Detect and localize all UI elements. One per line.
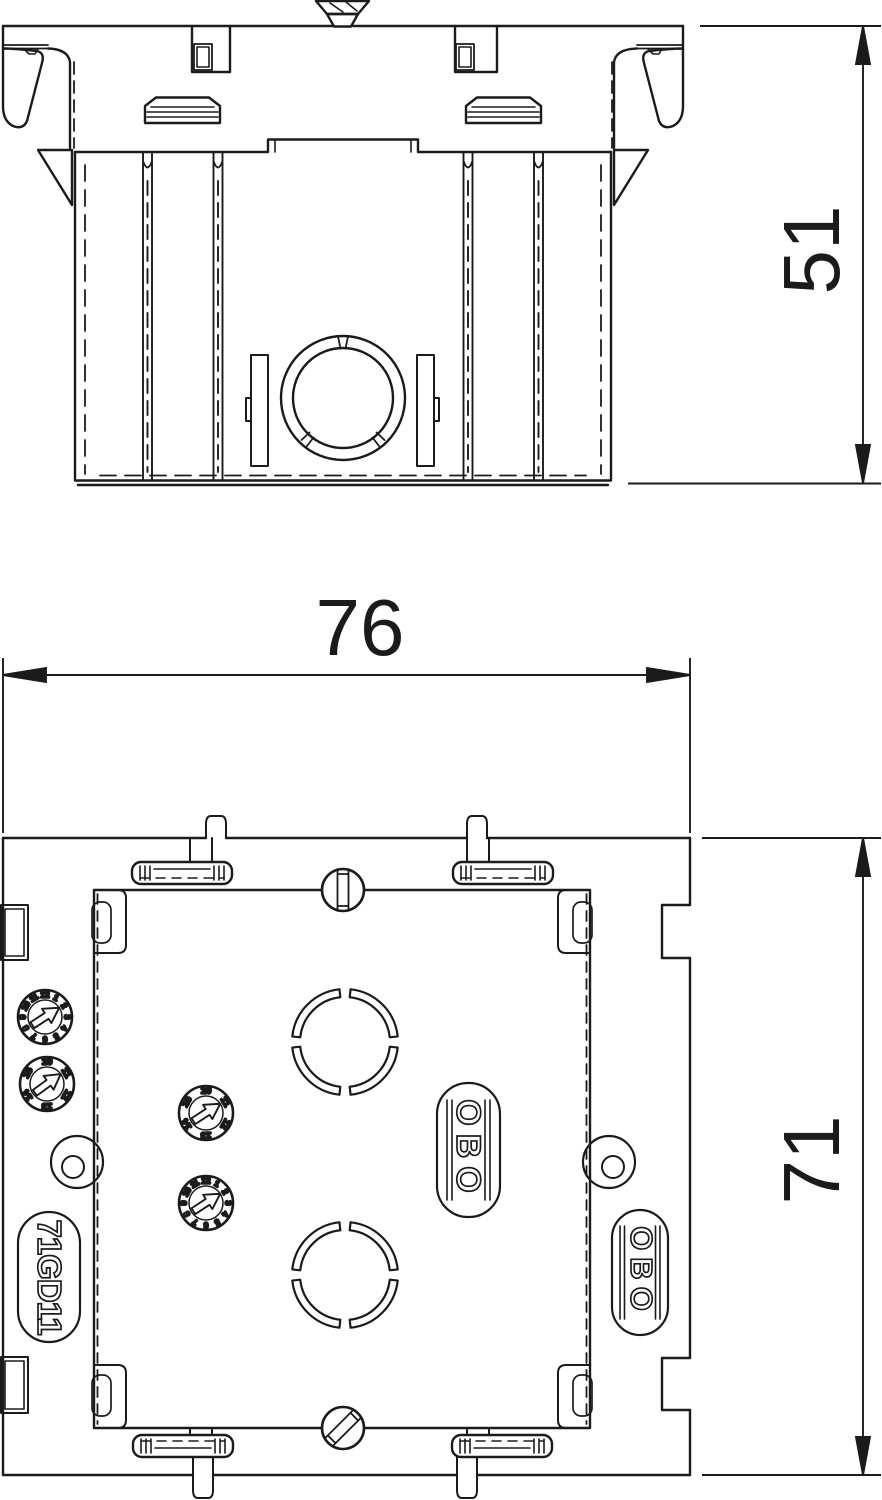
side-elevation-view [3, 1, 683, 485]
cable-entry-dial: 101112131415 [20, 1057, 74, 1112]
front-knockout-rings [292, 989, 397, 1327]
technical-drawing-page: 121234567891011 101112131415 10111213141… [0, 0, 882, 1500]
right-edge-with-notches [662, 838, 690, 1475]
plaster-claw-left [3, 49, 43, 128]
left-edge-tabs [1, 905, 28, 1413]
bottom-latch-left [133, 1428, 233, 1498]
device-screw-top [322, 869, 364, 911]
obo-logo-text-2: OBO [624, 1217, 658, 1327]
latch-block-left [145, 98, 220, 124]
dim-76-lines [3, 658, 690, 833]
top-latch-right [453, 816, 553, 884]
part-label: 71GD11 [31, 1211, 67, 1343]
cable-entry-dial: 101112131415 [179, 1086, 233, 1141]
clamp-bar-left [246, 355, 268, 466]
latch-block-right [466, 98, 541, 124]
svg-text:9: 9 [180, 1200, 189, 1205]
plaster-claw-right [643, 49, 683, 128]
svg-text:6: 6 [42, 1035, 47, 1044]
svg-text:10: 10 [201, 1086, 212, 1097]
dim-side-height-value: 51 [777, 190, 847, 310]
wedge-right [614, 150, 648, 205]
cable-entry-dial: 121234567891011 [18, 990, 72, 1044]
svg-text:3: 3 [224, 1201, 233, 1206]
svg-text:12: 12 [41, 991, 50, 1000]
front-view: 121234567891011 101112131415 10111213141… [1, 816, 690, 1498]
mounting-tab-right [455, 26, 497, 72]
svg-text:9: 9 [19, 1014, 28, 1019]
dim-width-value: 76 [300, 588, 420, 668]
svg-text:3: 3 [63, 1015, 72, 1020]
mounting-tab-left [192, 26, 230, 72]
svg-text:13: 13 [201, 1130, 212, 1141]
bottom-latch-right [452, 1428, 552, 1498]
inner-corner-brackets [92, 890, 592, 1428]
cable-entry-dial: 121234567891011 [179, 1176, 233, 1230]
fixing-screw-side [316, 1, 369, 27]
drawing-canvas: 121234567891011 101112131415 10111213141… [0, 0, 882, 1500]
top-latch-left [132, 816, 232, 884]
dimension-lines [3, 26, 881, 1475]
obo-logo-text-1: OBO [450, 1090, 486, 1210]
dim-front-height-value: 71 [777, 1100, 847, 1220]
svg-text:6: 6 [203, 1221, 208, 1230]
svg-text:10: 10 [42, 1057, 53, 1068]
svg-text:13: 13 [42, 1101, 53, 1112]
bottom-knockout-ring [281, 336, 405, 460]
device-screw-bottom [322, 1407, 364, 1449]
body-ribs [143, 152, 543, 480]
svg-text:12: 12 [202, 1177, 211, 1186]
wedge-left [38, 150, 72, 205]
clamp-bar-right [417, 355, 439, 466]
